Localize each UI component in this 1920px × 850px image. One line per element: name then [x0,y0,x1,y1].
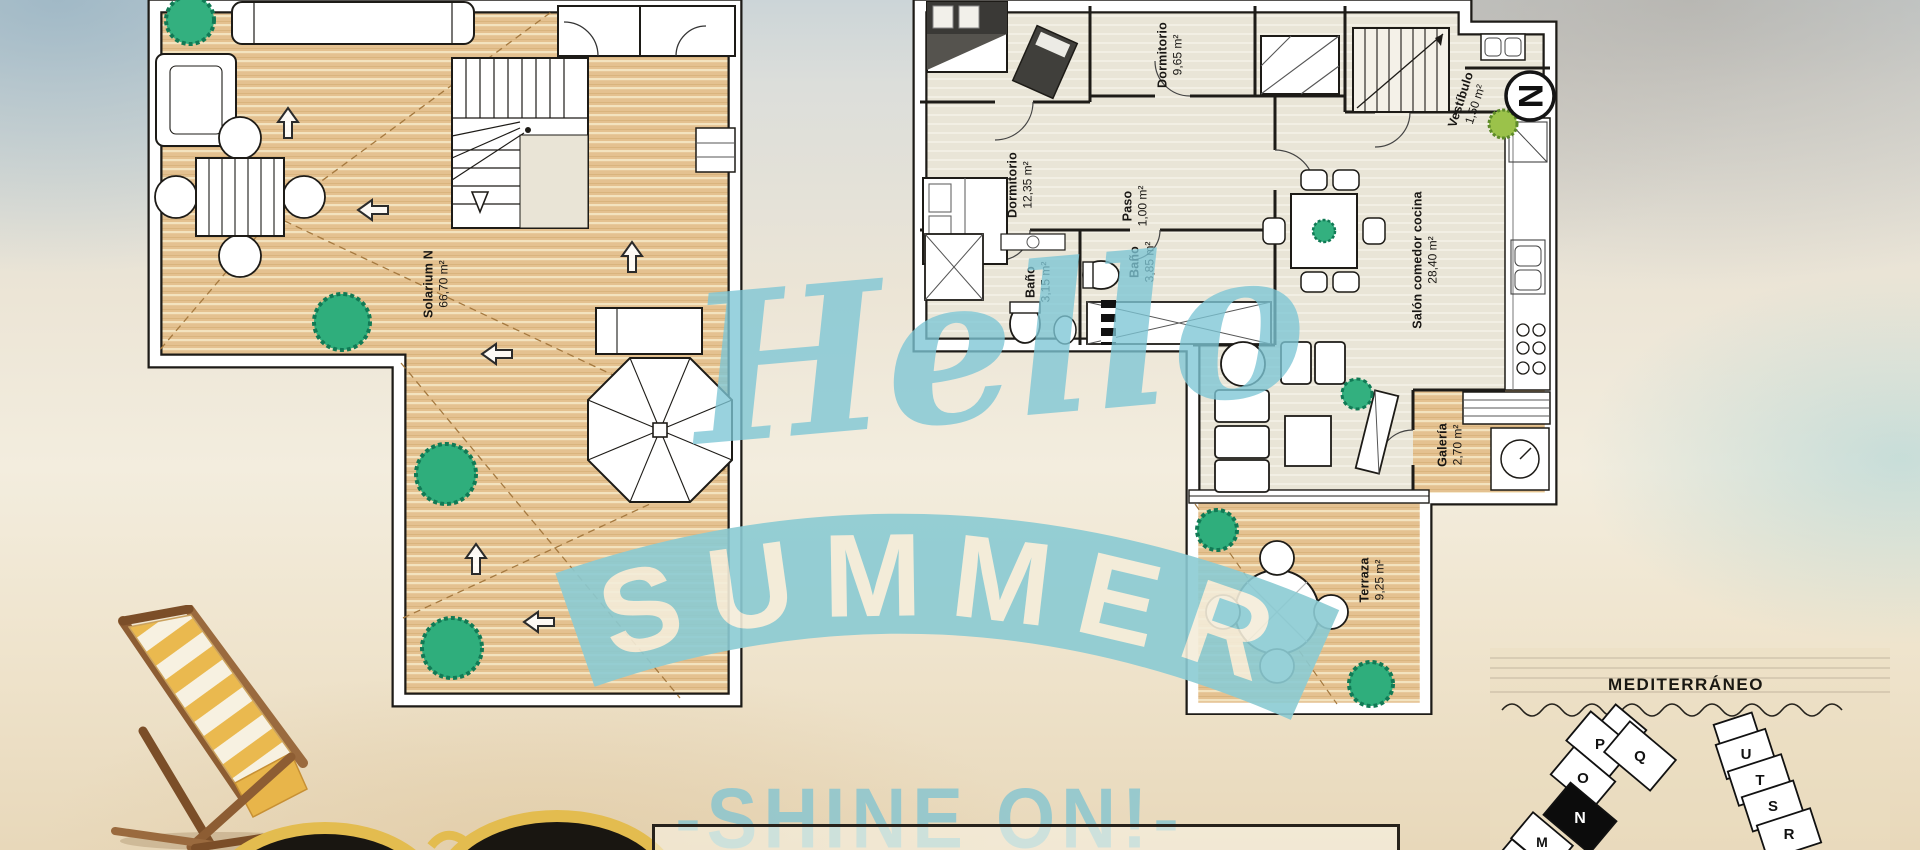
block-letter-p: P [1595,736,1605,753]
bottom-table-frame [652,824,1400,850]
north-compass: N [1506,72,1554,120]
apartment-floorplan: N [905,0,1565,715]
compass-letter: N [1511,84,1549,109]
solarium-floorplan [120,0,770,715]
block-letter-u: U [1741,746,1752,763]
poster-canvas: N Solarium N 66,70 m² Dormitorio9,65 m² … [0,0,1920,850]
block-letter-t: T [1755,772,1764,789]
block-letter-s: S [1768,798,1778,815]
block-letter-q: Q [1634,748,1646,765]
sun-lounger [596,308,702,354]
sunglasses [205,806,675,850]
entry-stairs [1353,28,1449,112]
coffee-table [1285,416,1331,466]
staircase [452,58,588,228]
block-letter-m: M [1536,834,1548,850]
block-letter-o: O [1577,770,1589,787]
sofa [232,2,474,44]
block-letter-n: N [1574,810,1586,827]
block-letter-r: R [1784,826,1795,843]
site-title: MEDITERRÁNEO [1608,675,1764,694]
pouf [1221,342,1265,386]
striped-wall [1101,300,1116,345]
parasol [588,358,732,502]
